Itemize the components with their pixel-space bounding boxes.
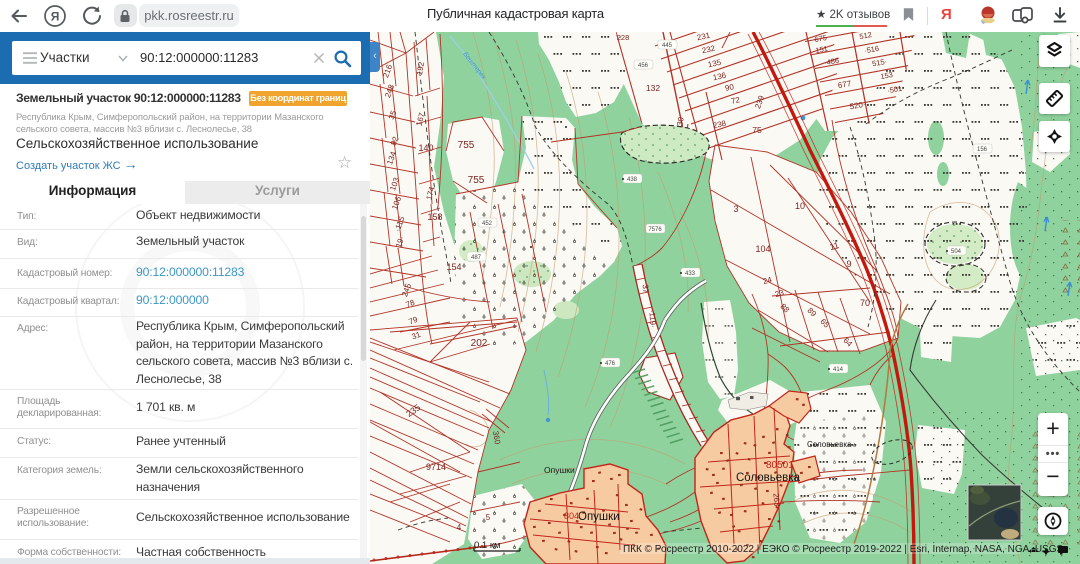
svg-text:Соловьевка: Соловьевка (736, 472, 801, 484)
svg-text:140: 140 (418, 143, 433, 153)
svg-text:Соловьевка: Соловьевка (807, 440, 852, 449)
svg-text:202: 202 (471, 338, 488, 349)
svg-text:804: 804 (564, 511, 579, 521)
svg-text:ПКК © Росреестр 2010-2022 | ЕЭ: ПКК © Росреестр 2010-2022 | ЕЭКО © Росре… (623, 544, 1063, 555)
svg-text:476: 476 (605, 361, 616, 367)
svg-text:·119·: ·119· (647, 309, 658, 328)
svg-text:438: 438 (627, 177, 638, 183)
svg-text:Опушки: Опушки (578, 511, 620, 523)
svg-text:755: 755 (458, 140, 475, 151)
svg-text:9: 9 (846, 259, 851, 269)
svg-text:Я: Я (51, 10, 60, 24)
svg-text:456: 456 (638, 63, 649, 69)
svg-text:452: 452 (482, 221, 493, 227)
svg-text:5: 5 (486, 513, 491, 522)
svg-text:487: 487 (471, 255, 482, 261)
svg-text:755: 755 (468, 175, 485, 186)
svg-text:228: 228 (617, 33, 630, 42)
svg-text:433: 433 (685, 271, 696, 277)
svg-text:10: 10 (795, 201, 805, 211)
svg-text:37: 37 (641, 284, 651, 294)
svg-text:445: 445 (662, 43, 673, 49)
svg-text:263: 263 (771, 493, 781, 508)
svg-text:7576: 7576 (648, 227, 662, 233)
svg-text:70: 70 (860, 298, 870, 308)
svg-text:104: 104 (755, 244, 770, 254)
svg-text:75: 75 (752, 125, 762, 135)
svg-text:Опушки: Опушки (544, 465, 575, 475)
svg-text:156: 156 (977, 147, 988, 153)
svg-text:3: 3 (733, 204, 738, 214)
svg-text:158: 158 (427, 212, 442, 222)
svg-text:0.1 км: 0.1 км (474, 540, 501, 551)
svg-text:80501: 80501 (766, 460, 794, 471)
svg-text:504: 504 (951, 249, 962, 255)
svg-text:154: 154 (446, 262, 461, 272)
svg-text:414: 414 (833, 367, 844, 373)
svg-text:4: 4 (457, 523, 462, 532)
svg-text:132: 132 (646, 83, 660, 93)
svg-text:9714: 9714 (426, 462, 446, 472)
